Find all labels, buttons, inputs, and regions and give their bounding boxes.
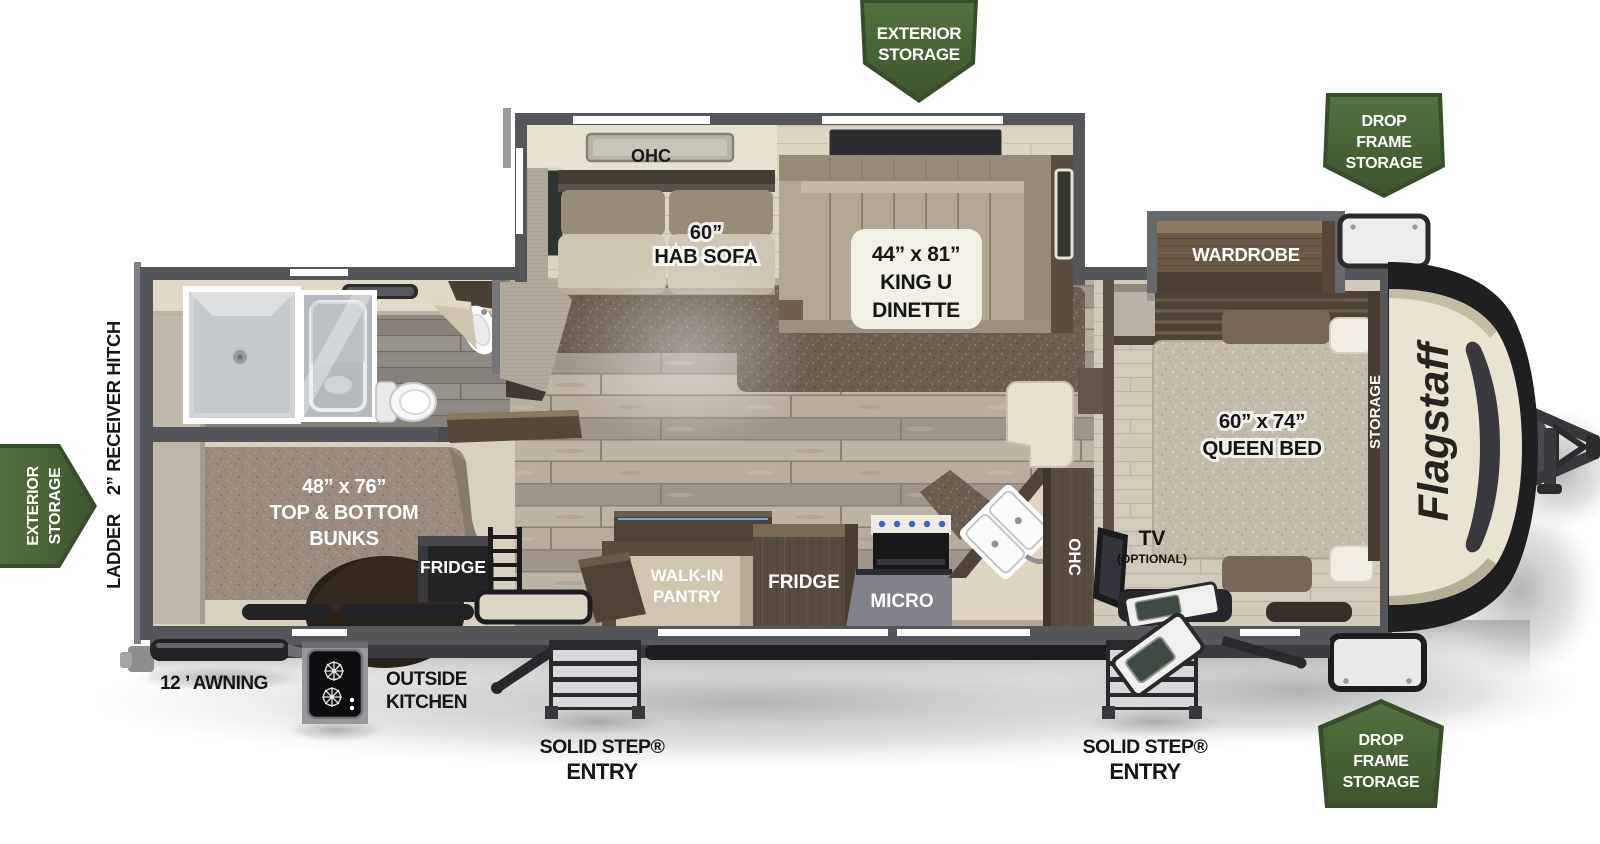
svg-text:OUTSIDE: OUTSIDE: [386, 669, 467, 690]
svg-text:(OPTIONAL): (OPTIONAL): [1117, 552, 1187, 566]
svg-text:DROP: DROP: [1358, 732, 1404, 749]
svg-text:DINETTE: DINETTE: [872, 299, 960, 322]
svg-text:BUNKS: BUNKS: [309, 528, 379, 550]
svg-text:12 ’ AWNING: 12 ’ AWNING: [160, 673, 268, 694]
svg-text:MICRO: MICRO: [870, 591, 933, 612]
svg-text:SOLID STEP®: SOLID STEP®: [1083, 736, 1209, 758]
svg-text:FRAME: FRAME: [1353, 753, 1409, 770]
svg-text:EXTERIOR: EXTERIOR: [25, 466, 42, 546]
svg-text:60”: 60”: [690, 222, 722, 244]
svg-text:60” x 74”: 60” x 74”: [1219, 410, 1305, 433]
svg-text:OHC: OHC: [631, 146, 671, 166]
svg-text:FRIDGE: FRIDGE: [420, 557, 486, 577]
svg-text:WARDROBE: WARDROBE: [1192, 244, 1300, 265]
svg-text:48” x 76”: 48” x 76”: [302, 476, 386, 498]
svg-text:FRAME: FRAME: [1356, 134, 1412, 151]
svg-text:OHC: OHC: [1065, 538, 1084, 576]
svg-text:Flagstaff: Flagstaff: [1410, 339, 1458, 521]
svg-text:ENTRY: ENTRY: [566, 759, 638, 784]
svg-text:DROP: DROP: [1361, 113, 1407, 130]
svg-text:44” x 81”: 44” x 81”: [872, 243, 960, 266]
svg-text:LADDER 2” RECEIVER HITCH: LADDER 2” RECEIVER HITCH: [103, 321, 124, 589]
svg-text:WALK-IN: WALK-IN: [651, 566, 724, 585]
svg-text:STORAGE: STORAGE: [1346, 155, 1423, 172]
svg-text:SOLID STEP®: SOLID STEP®: [540, 736, 666, 758]
svg-text:KITCHEN: KITCHEN: [386, 692, 467, 713]
svg-text:STORAGE: STORAGE: [47, 467, 64, 544]
svg-text:FRIDGE: FRIDGE: [768, 572, 840, 593]
svg-text:KING U: KING U: [880, 271, 952, 294]
svg-text:QUEEN BED: QUEEN BED: [1202, 437, 1321, 460]
svg-text:HAB SOFA: HAB SOFA: [654, 246, 757, 268]
svg-text:STORAGE: STORAGE: [1343, 774, 1420, 791]
svg-text:TOP & BOTTOM: TOP & BOTTOM: [270, 502, 419, 524]
svg-text:EXTERIOR: EXTERIOR: [877, 24, 962, 43]
svg-text:STORAGE: STORAGE: [878, 45, 960, 64]
svg-text:TV: TV: [1139, 527, 1166, 550]
svg-text:ENTRY: ENTRY: [1109, 759, 1181, 784]
svg-text:PANTRY: PANTRY: [653, 587, 722, 606]
